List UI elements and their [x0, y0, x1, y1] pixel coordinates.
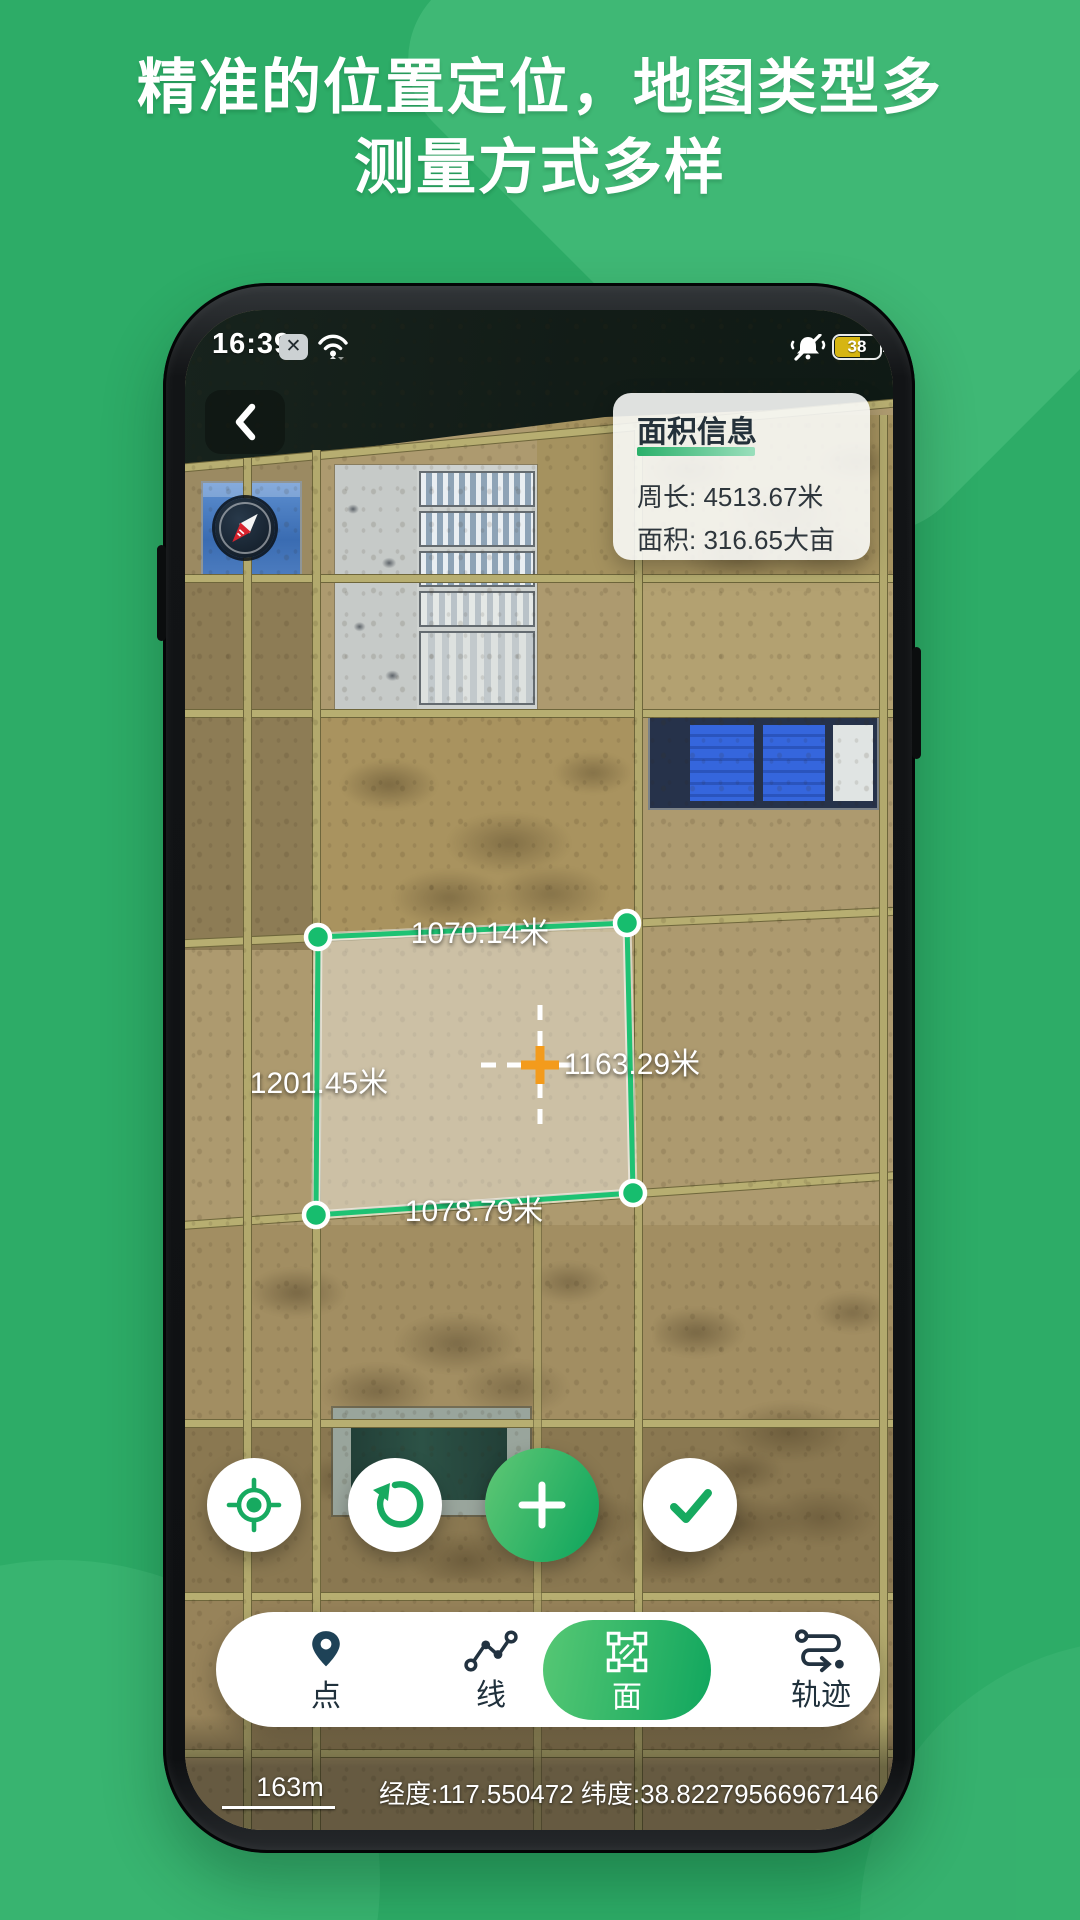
mute-icon	[789, 334, 827, 367]
tab-track-label: 轨迹	[791, 1680, 851, 1712]
wifi-icon	[317, 332, 351, 367]
locate-button[interactable]	[207, 1458, 301, 1552]
check-icon	[661, 1476, 719, 1534]
page-background: 精准的位置定位，地图类型多 测量方式多样	[0, 0, 1080, 1920]
perimeter-value: 周长: 4513.67米	[637, 477, 823, 514]
edge-length-label-left: 1201.45米	[250, 1058, 388, 1102]
coordinates-readout: 经度:117.550472 纬度:38.822795669671464	[379, 1778, 879, 1810]
tab-line[interactable]: 线	[436, 1612, 546, 1727]
page-title-line2: 测量方式多样	[0, 128, 1080, 208]
locate-icon	[225, 1476, 283, 1534]
alarm-off-icon: ✕	[279, 334, 308, 360]
measure-mode-nav: 点 线	[216, 1612, 880, 1727]
area-info-panel: 面积信息 周长: 4513.67米 面积: 316.65大亩	[613, 393, 870, 560]
area-icon	[602, 1627, 652, 1677]
power-button	[912, 647, 921, 759]
status-bar: 16:39 ✕	[185, 322, 893, 366]
compass-button[interactable]	[215, 498, 275, 558]
pin-icon	[303, 1627, 349, 1675]
edge-length-label-bottom: 1078.79米	[405, 1186, 543, 1230]
info-panel-title: 面积信息	[637, 407, 757, 451]
plus-icon	[512, 1475, 572, 1535]
page-title: 精准的位置定位，地图类型多 测量方式多样	[0, 48, 1080, 208]
tab-point-label: 点	[311, 1681, 341, 1713]
page-title-line1: 精准的位置定位，地图类型多	[0, 48, 1080, 128]
battery-icon: 38	[832, 334, 882, 360]
tab-area-label: 面	[612, 1682, 642, 1714]
vertex-handle[interactable]	[304, 1203, 328, 1227]
undo-button[interactable]	[348, 1458, 442, 1552]
phone-screen: 1070.14米 1201.45米 1163.29米 1078.79米 16:3…	[185, 310, 893, 1830]
vertex-handle[interactable]	[621, 1181, 645, 1205]
chevron-left-icon	[232, 402, 258, 442]
back-button[interactable]	[205, 390, 285, 454]
add-point-button[interactable]	[485, 1448, 599, 1562]
confirm-button[interactable]	[643, 1458, 737, 1552]
area-value: 面积: 316.65大亩	[637, 520, 835, 557]
map-scale-bar	[222, 1806, 335, 1809]
tab-area-active[interactable]: 面	[543, 1620, 711, 1720]
edge-length-label-center: 1163.29米	[564, 1039, 700, 1083]
tab-point[interactable]: 点	[271, 1612, 381, 1727]
undo-icon	[366, 1476, 424, 1534]
battery-percent-label: 38	[834, 336, 880, 358]
vertex-handle[interactable]	[615, 911, 639, 935]
polyline-icon	[463, 1628, 519, 1674]
edge-length-label-top: 1070.14米	[411, 908, 549, 952]
route-icon	[793, 1628, 849, 1674]
phone-mockup: 1070.14米 1201.45米 1163.29米 1078.79米 16:3…	[163, 283, 915, 1853]
vertex-handle[interactable]	[306, 925, 330, 949]
map-scale-label: 163m	[222, 1772, 358, 1803]
volume-button	[157, 545, 166, 641]
tab-track[interactable]: 轨迹	[766, 1612, 876, 1727]
title-highlight-bar	[637, 447, 755, 456]
tab-line-label: 线	[476, 1680, 506, 1712]
